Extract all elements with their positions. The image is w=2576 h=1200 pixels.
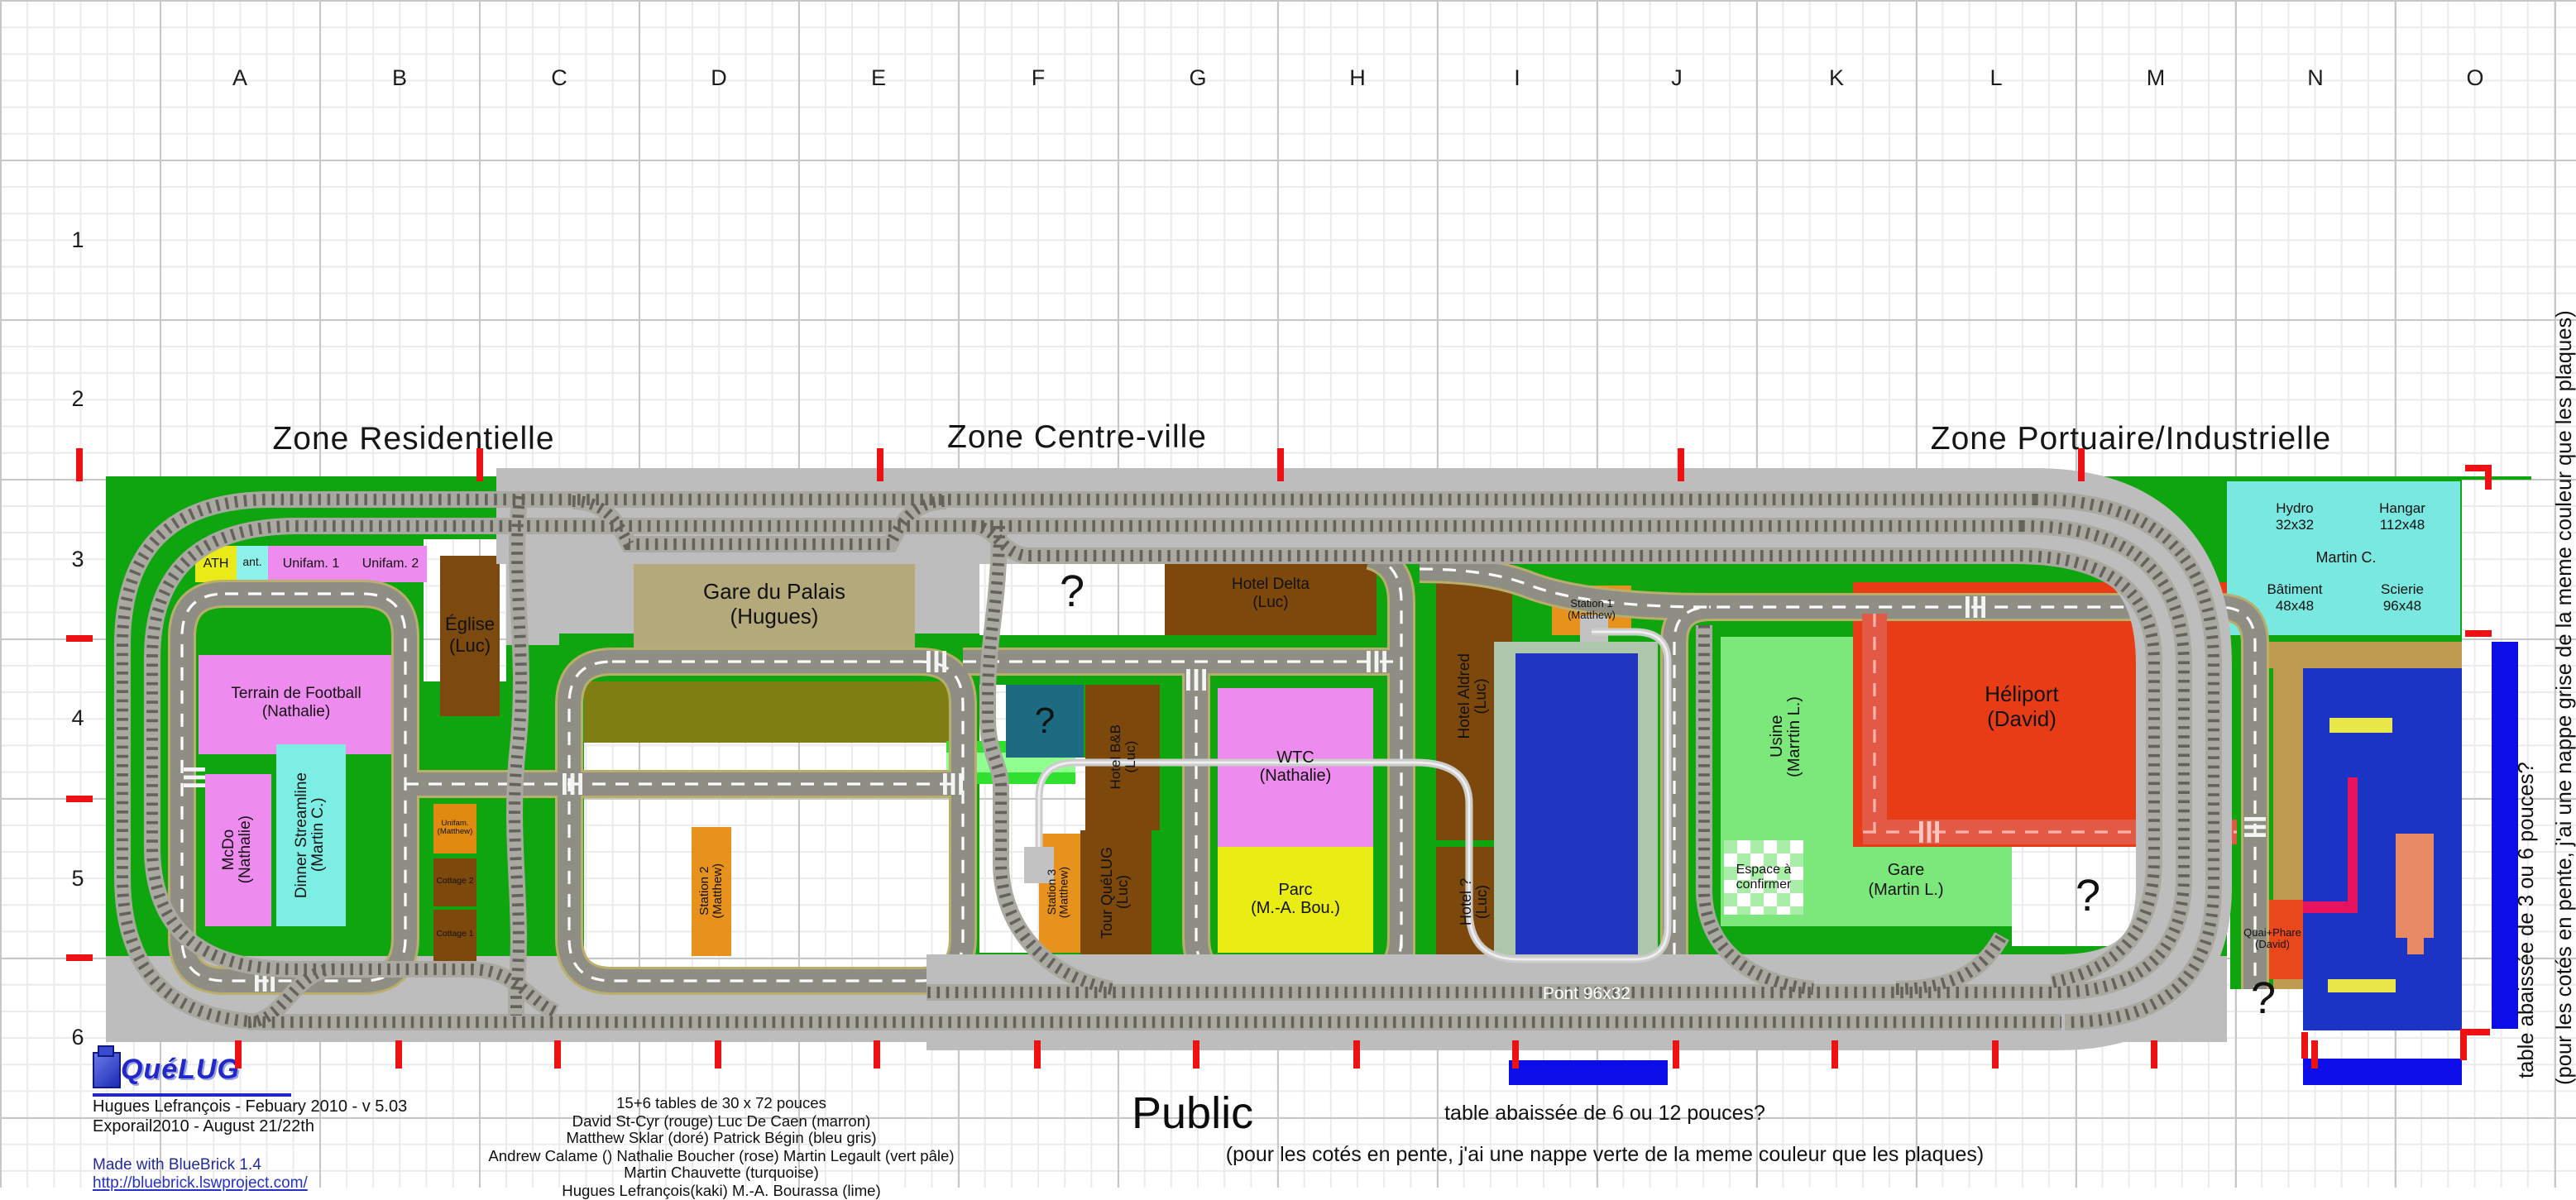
- path: [973, 526, 2154, 982]
- column-header-B: B: [392, 65, 407, 90]
- zone-title-downtown: Zone Centre-ville: [947, 419, 1207, 457]
- red-tick: [1991, 1040, 1998, 1069]
- column-header-N: N: [2307, 65, 2324, 90]
- path: [1039, 632, 1668, 959]
- red-tick: [554, 1040, 561, 1069]
- red-tick: [2485, 465, 2492, 490]
- red-tick: [1831, 1040, 1838, 1069]
- red-tick: [2310, 1040, 2317, 1069]
- layout-canvas: ATHant.Unifam. 1Unifam. 2Église (Luc)Ter…: [0, 0, 2576, 1188]
- red-tick: [1353, 1040, 1359, 1069]
- path: [1704, 625, 1813, 989]
- red-tick: [2465, 630, 2492, 637]
- red-tick: [1033, 1040, 1040, 1069]
- zone-title-residential: Zone Residentielle: [272, 421, 554, 459]
- red-tick: [877, 448, 883, 481]
- path: [973, 526, 2154, 982]
- red-tick: [66, 635, 93, 642]
- credit-line: Hugues Lefrançois(kaki) M.-A. Bourassa (…: [473, 1183, 970, 1200]
- red-tick: [1193, 1040, 1199, 1069]
- column-header-C: C: [551, 65, 567, 90]
- red-tick: [714, 1040, 721, 1069]
- column-header-D: D: [711, 65, 727, 90]
- red-tick: [1512, 1040, 1519, 1069]
- red-tick: [1672, 1040, 1678, 1069]
- red-tick: [66, 795, 93, 801]
- bottom-slope-note: (pour les cotés en pente, j'ai une nappe…: [1226, 1143, 1984, 1166]
- column-header-F: F: [1032, 65, 1046, 90]
- footer-line1: Hugues Lefrançois - Febuary 2010 - v 5.0…: [93, 1098, 407, 1116]
- path: [152, 526, 2022, 1012]
- column-header-E: E: [871, 65, 886, 90]
- red-tick: [1678, 448, 1684, 481]
- path: [152, 526, 2022, 1012]
- column-header-A: A: [232, 65, 247, 90]
- right-table-note: table abaissée de 3 ou 6 pouces?: [2513, 675, 2538, 1078]
- question-mark: ?: [2251, 973, 2276, 1025]
- logo-underline: [93, 1093, 291, 1097]
- red-tick: [2460, 1035, 2467, 1060]
- bottom-table-note: table abaissée de 6 ou 12 pouces?: [1444, 1102, 1765, 1125]
- path: [988, 526, 1112, 989]
- column-header-G: G: [1189, 65, 1206, 90]
- red-tick: [874, 1040, 880, 1069]
- bluebrick-url[interactable]: http://bluebrick.lswproject.com/: [93, 1174, 308, 1193]
- path: [1039, 632, 1668, 959]
- column-header-K: K: [1829, 65, 1844, 90]
- credit-line: 15+6 tables de 30 x 72 pouces: [473, 1095, 970, 1112]
- column-header-L: L: [1989, 65, 2002, 90]
- red-tick: [2301, 1032, 2308, 1059]
- red-tick: [395, 1040, 401, 1069]
- public-label: Public: [1132, 1088, 1253, 1140]
- red-tick: [66, 954, 93, 961]
- red-tick: [2151, 1040, 2157, 1069]
- red-tick: [76, 448, 83, 481]
- row-header-1: 1: [71, 227, 84, 252]
- made-with: Made with BlueBrick 1.4: [93, 1156, 261, 1174]
- column-header-O: O: [2466, 65, 2483, 90]
- right-slope-note: (pour les cotés en pente, j'ai une nappe…: [2551, 450, 2576, 1085]
- column-header-H: H: [1349, 65, 1366, 90]
- red-tick: [476, 448, 483, 481]
- footer-line2: Exporail2010 - August 21/22th: [93, 1118, 314, 1136]
- red-tick: [1277, 448, 1284, 481]
- column-header-M: M: [2147, 65, 2166, 90]
- row-header-6: 6: [71, 1025, 84, 1050]
- row-header-5: 5: [71, 866, 84, 891]
- logo-text: QuéLUG: [121, 1054, 240, 1087]
- question-mark: ?: [1060, 567, 1085, 618]
- zone-title-port: Zone Portuaire/Industrielle: [1931, 421, 2331, 459]
- brick-icon: [93, 1052, 121, 1088]
- credits-block: 15+6 tables de 30 x 72 poucesDavid St-Cy…: [473, 1095, 970, 1200]
- column-header-I: I: [1514, 65, 1520, 90]
- credit-line: Martin Chauvette (turquoise): [473, 1165, 970, 1183]
- credit-line: David St-Cyr (rouge) Luc De Caen (marron…: [473, 1112, 970, 1130]
- row-header-3: 3: [71, 547, 84, 571]
- red-tick: [2460, 1029, 2490, 1035]
- credit-line: Matthew Sklar (doré) Patrick Bégin (bleu…: [473, 1130, 970, 1147]
- column-header-J: J: [1671, 65, 1683, 90]
- row-header-4: 4: [71, 706, 84, 731]
- row-header-2: 2: [71, 387, 84, 412]
- brick-icon-stud: [98, 1045, 114, 1057]
- red-tick: [235, 1040, 242, 1069]
- tracks-layer[interactable]: [0, 0, 2576, 1188]
- credit-line: Andrew Calame () Nathalie Boucher (rose)…: [473, 1148, 970, 1165]
- red-tick: [2078, 448, 2085, 481]
- question-mark: ?: [2076, 871, 2100, 922]
